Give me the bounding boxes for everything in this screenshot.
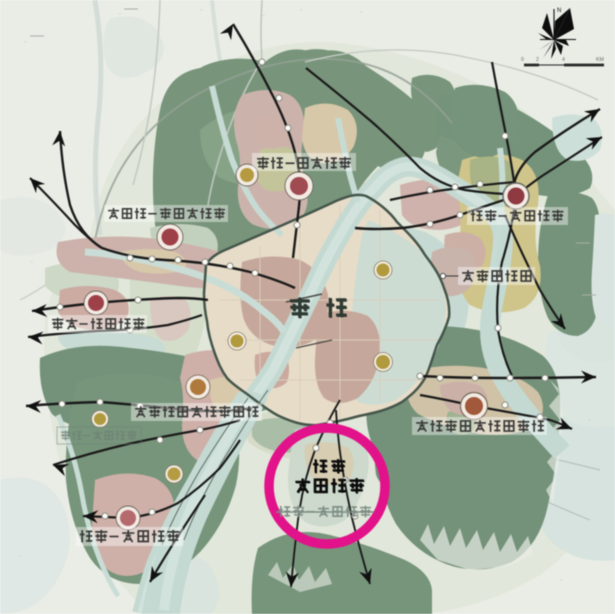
svg-text:..: .. bbox=[30, 258, 34, 264]
svg-text:N: N bbox=[557, 8, 561, 14]
svg-text:KM: KM bbox=[596, 57, 604, 63]
svg-text:..: .. bbox=[18, 552, 22, 558]
svg-text:..: .. bbox=[262, 12, 266, 18]
svg-text:..: .. bbox=[24, 38, 28, 44]
svg-text:0: 0 bbox=[521, 57, 524, 63]
svg-text:..: .. bbox=[560, 576, 564, 582]
svg-text:..: .. bbox=[118, 10, 122, 16]
svg-text:..: .. bbox=[300, 6, 304, 12]
svg-text:..: .. bbox=[360, 8, 364, 14]
svg-text:..: .. bbox=[588, 416, 592, 422]
svg-text:..: .. bbox=[200, 6, 204, 12]
svg-text:4: 4 bbox=[562, 57, 565, 63]
svg-text:2: 2 bbox=[536, 57, 539, 63]
svg-text:..: .. bbox=[580, 296, 584, 302]
svg-text:..: .. bbox=[575, 244, 579, 250]
